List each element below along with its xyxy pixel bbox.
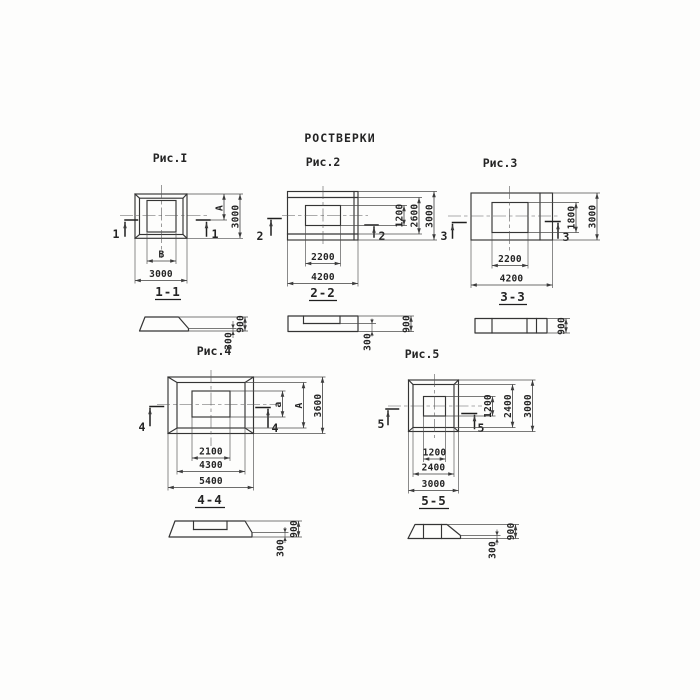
fig5-cut-left-number: 5 [378, 417, 385, 431]
fig4-dim-right-outer: 3600 [313, 394, 324, 418]
section-5-5-dim-300: 300 [488, 541, 499, 559]
fig2-dim-bottom-inner: 2200 [311, 252, 335, 263]
fig5-dim-bottom-outer: 3000 [422, 479, 446, 490]
fig5-label: Рис.5 [405, 347, 440, 361]
fig1-dim-bottom-outer: 3000 [149, 269, 173, 280]
section-2-2-dim-900: 900 [402, 315, 413, 333]
fig4-dim-bottom-middle: 4300 [199, 460, 223, 471]
section-1-1-dim-900: 900 [236, 315, 247, 333]
drawing-sheet: РОСТВЕРКИ Рис.I Рис.2 Рис.3 Рис.4 Рис.5 … [0, 0, 700, 700]
fig3-cut-right-number: 3 [563, 230, 570, 244]
fig2-dim-right-2600: 2600 [410, 204, 421, 228]
section-5-5-dim-900: 900 [506, 523, 517, 541]
fig5-dim-right-middle: 2400 [503, 394, 514, 418]
fig1-cut-right-number: 1 [212, 227, 219, 241]
sheet-title: РОСТВЕРКИ [304, 131, 375, 145]
fig3-dim-bottom-inner: 2200 [498, 254, 522, 265]
fig4-dim-bottom-inner: 2100 [199, 447, 223, 458]
section-3-3-label: 3-3 [500, 289, 526, 304]
fig3-dim-right-inner: 1800 [567, 206, 578, 230]
section-2-2-label: 2-2 [310, 285, 336, 300]
fig2-cut-right-number: 2 [379, 229, 386, 243]
fig5-dim-bottom-inner: 1200 [423, 448, 447, 459]
fig2-dim-right-1200: 1200 [395, 204, 406, 228]
fig2-dim-bottom-outer: 4200 [311, 272, 335, 283]
section-1-1-label: 1-1 [155, 284, 181, 299]
fig1-label: Рис.I [153, 151, 188, 165]
section-4-4-dim-900: 900 [289, 520, 300, 538]
fig5-dim-bottom-middle: 2400 [422, 463, 446, 474]
fig1-dim-right-inner: А [215, 205, 226, 211]
section-1-1-dim-300: 300 [224, 332, 235, 350]
section-5-5-label: 5-5 [421, 493, 447, 508]
section-3-3-dim-900: 900 [557, 317, 568, 335]
fig2-label: Рис.2 [306, 155, 341, 169]
fig3-dim-bottom-outer: 4200 [500, 274, 524, 285]
fig4-dim-right-inner: а [273, 401, 284, 407]
fig4-dim-right-middle: А [294, 402, 305, 408]
fig4-cut-left-number: 4 [139, 420, 146, 434]
fig4-dim-bottom-outer: 5400 [199, 476, 223, 487]
fig3-cut-left-number: 3 [441, 229, 448, 243]
fig5-cut-right-number: 5 [478, 421, 485, 435]
section-4-4-label: 4-4 [197, 492, 223, 507]
section-4-4-dim-300: 300 [276, 539, 287, 557]
fig2-cut-left-number: 2 [257, 229, 264, 243]
grillage-drawing: РОСТВЕРКИ Рис.I Рис.2 Рис.3 Рис.4 Рис.5 … [0, 0, 700, 700]
fig1-cut-left-number: 1 [113, 227, 120, 241]
fig5-dim-right-inner: 1200 [483, 394, 494, 418]
fig1-dim-right-outer: 3000 [231, 205, 242, 229]
fig2-dim-right-3000: 3000 [425, 204, 436, 228]
fig5-dim-right-outer: 3000 [523, 394, 534, 418]
fig1-dim-bottom-inner: В [159, 250, 165, 261]
fig3-dim-right-outer: 3000 [588, 205, 599, 229]
fig3-label: Рис.3 [483, 156, 518, 170]
sheet-background [0, 0, 700, 700]
section-2-2-dim-300: 300 [363, 333, 374, 351]
